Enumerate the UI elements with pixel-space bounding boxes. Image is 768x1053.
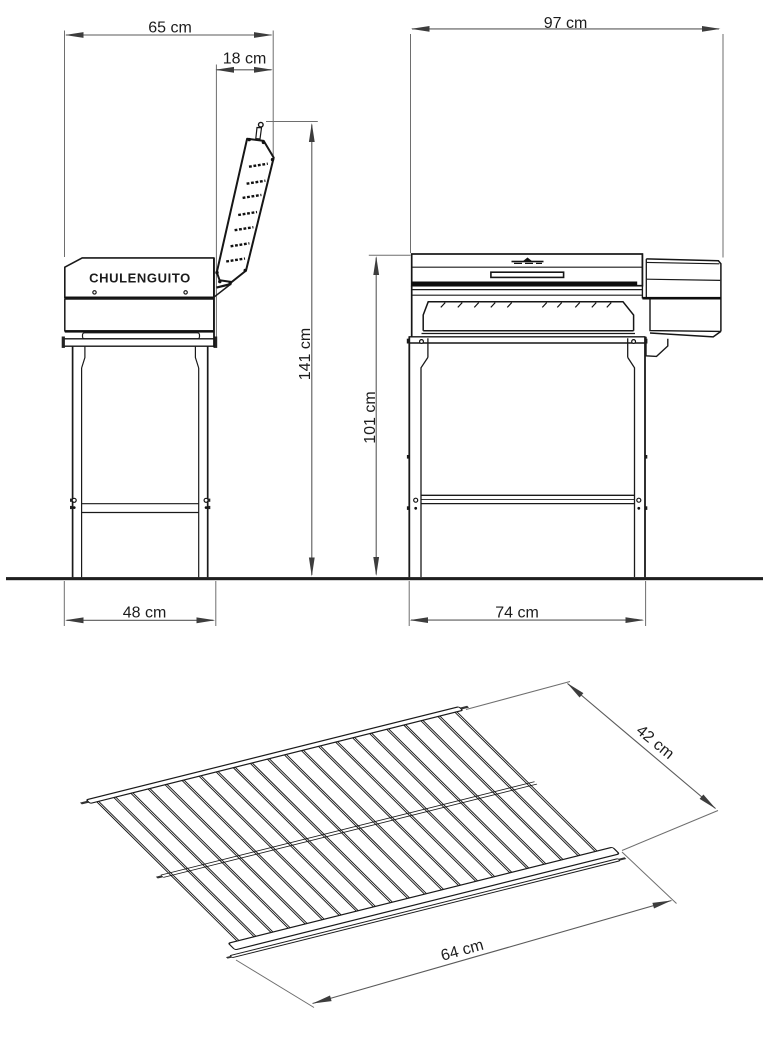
svg-text:CHULENGUITO: CHULENGUITO [89, 271, 191, 286]
svg-text:97 cm: 97 cm [544, 15, 588, 32]
svg-text:18 cm: 18 cm [223, 51, 267, 68]
svg-text:141 cm: 141 cm [297, 328, 314, 380]
svg-text:101 cm: 101 cm [362, 391, 379, 443]
svg-text:65 cm: 65 cm [148, 20, 192, 37]
svg-text:74 cm: 74 cm [495, 605, 539, 622]
svg-text:48 cm: 48 cm [123, 605, 167, 622]
